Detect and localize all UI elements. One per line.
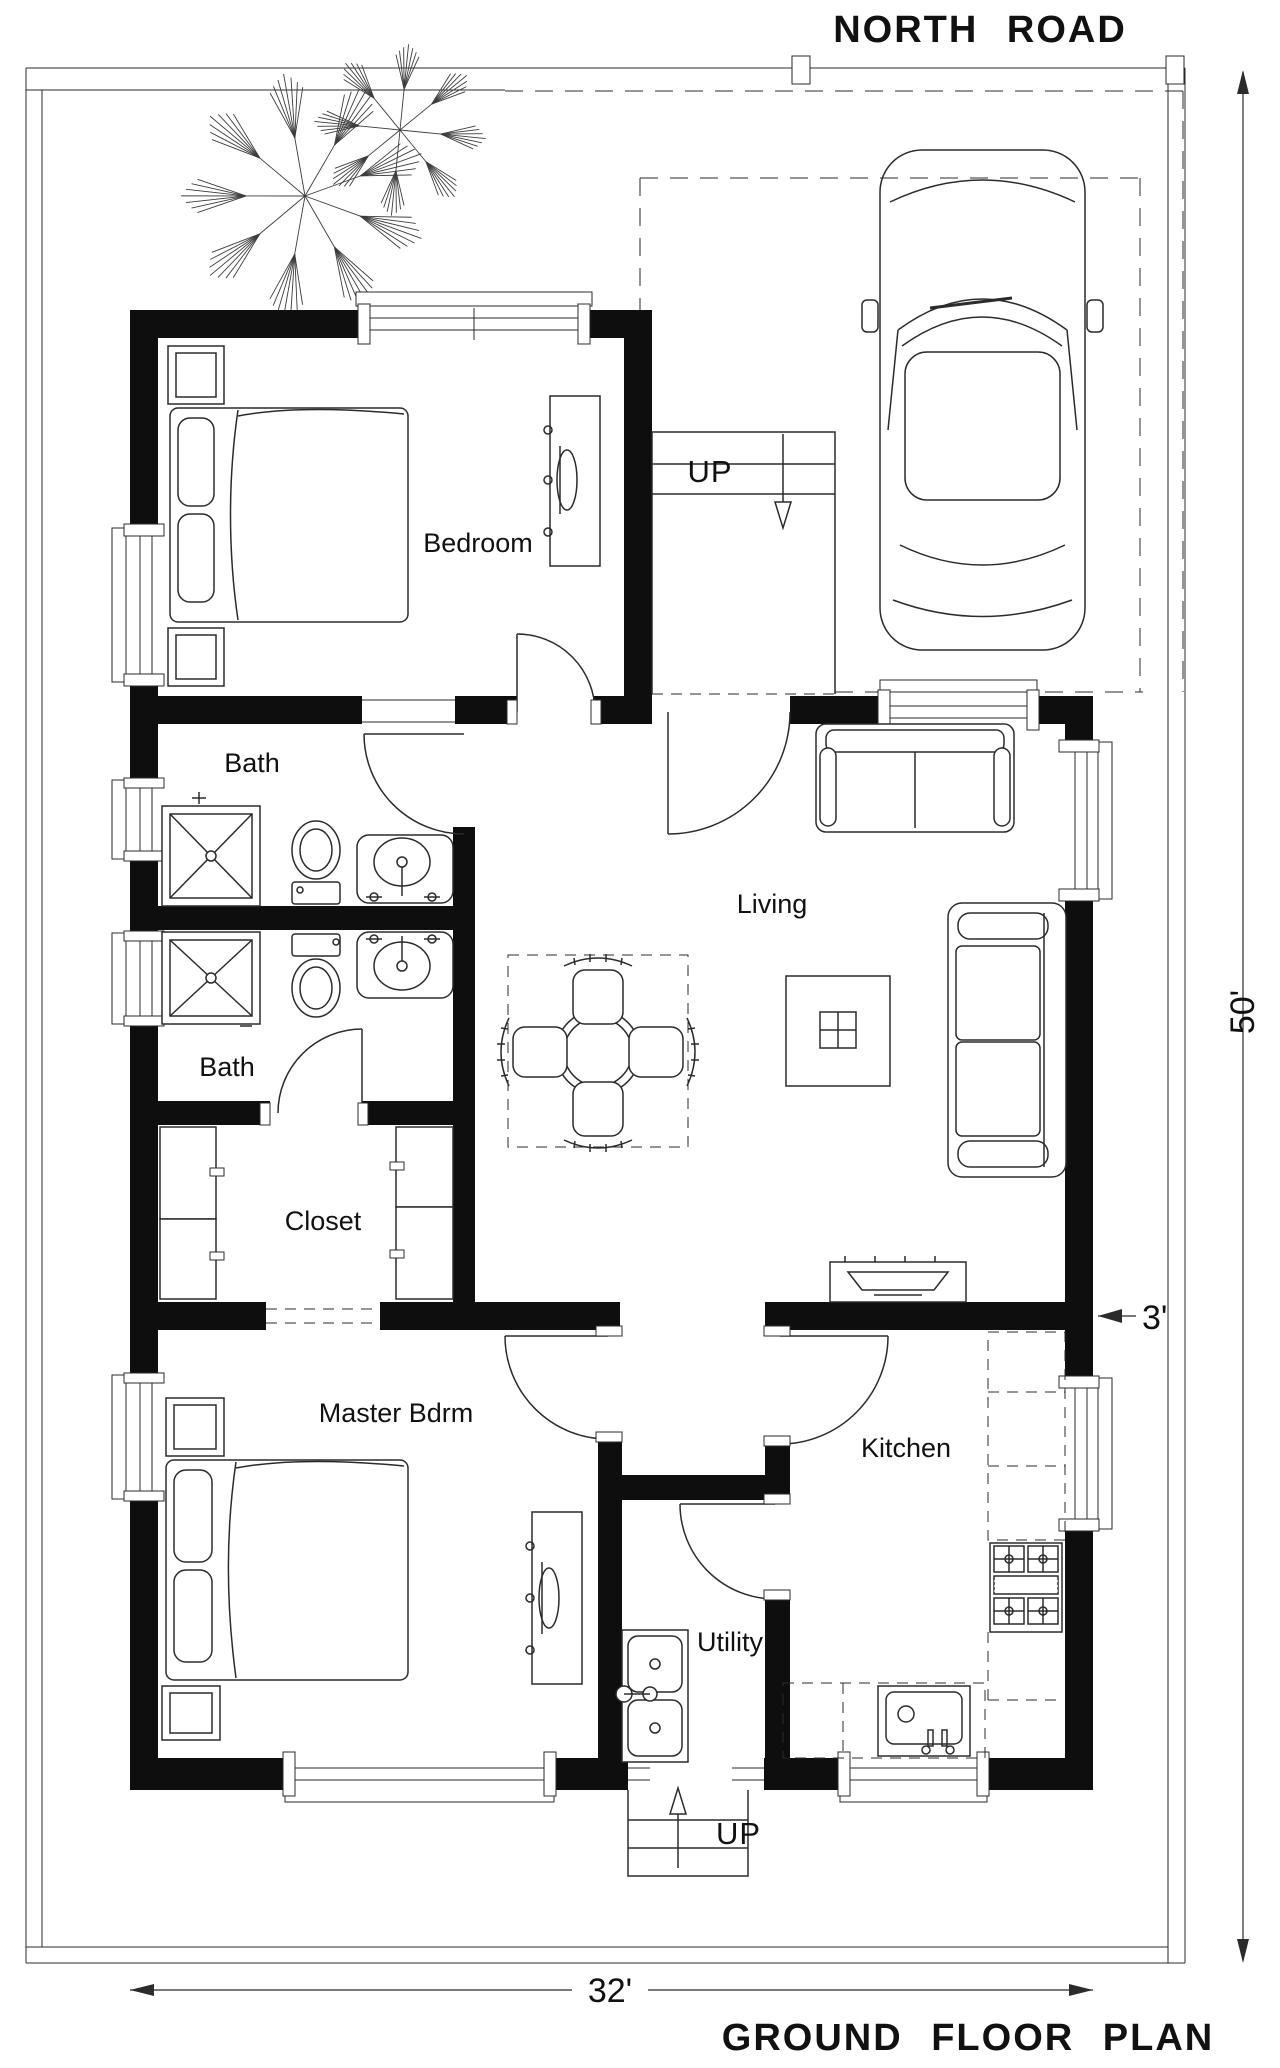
bed [170,408,408,622]
kitchen-sink [878,1686,970,1756]
door-arc-bath2 [278,1029,362,1113]
door-arc-kitchen [780,1336,888,1444]
bath2-fixtures [162,932,453,1026]
window [112,931,164,1026]
room-label-living: Living [737,889,808,919]
room-label-bedroom: Bedroom [423,528,533,558]
room-label-bath1: Bath [224,748,280,778]
room-label-utility: Utility [697,1627,763,1657]
window [838,1752,989,1802]
utility-sink [616,1630,688,1762]
bath1-fixtures [162,792,453,906]
window [112,778,164,861]
nightstand [168,346,224,404]
stove [990,1543,1062,1632]
window [283,1752,556,1802]
window [112,524,164,686]
car-mirror [862,300,878,332]
tree-icon [181,44,486,318]
door-arc-entry [668,712,790,834]
dimension-side-setback: 3' [1098,1299,1167,1337]
window [1059,1376,1112,1531]
dimension-house-width: 32' [130,1972,1093,2010]
sofa [948,903,1066,1177]
window [628,1758,650,1790]
room-label-master: Master Bdrm [319,1398,474,1428]
tv-console [830,1256,966,1302]
window [878,680,1039,730]
dining-set [497,954,699,1152]
window [732,1758,764,1790]
road-label: NORTH ROAD [833,9,1127,51]
gate-post [792,56,810,84]
vanity-sink [357,835,453,903]
nightstand [168,628,224,686]
room-label-kitchen: Kitchen [861,1433,951,1463]
gate-post [1166,56,1184,84]
door-arc-utility [680,1504,775,1599]
master-furniture [162,1398,582,1740]
room-label-closet: Closet [285,1206,362,1236]
dimension-3ft-label: 3' [1142,1299,1167,1337]
dimension-lot-depth: 50' [1224,70,1262,1963]
vanity-sink [357,932,453,998]
nightstand [166,1398,224,1456]
room-label-bath2: Bath [199,1052,255,1082]
stairs-up-label-bottom: UP [716,1816,761,1851]
door-arc-master [505,1336,608,1439]
kitchen-fixtures [783,1332,1065,1758]
driveway-dashed-outline [505,91,1183,692]
dimension-32ft-label: 32' [588,1972,632,2010]
car-mirror [1087,300,1103,332]
stair-direction-arrow [775,502,791,528]
nightstand [162,1686,220,1740]
stairs-up-label-top: UP [687,454,732,489]
dresser-tv [526,1512,582,1684]
toilet [292,821,340,904]
utility-fixtures [616,1630,688,1762]
car-icon [862,150,1103,650]
bedroom-furniture [168,346,600,686]
window [1059,740,1112,901]
stair-direction-arrow [670,1788,686,1814]
coffee-table [786,976,890,1086]
window [112,1373,164,1501]
loveseat [816,724,1014,832]
dresser-tv [544,396,600,566]
toilet [292,934,340,1017]
stairs-bottom: UP [628,1788,761,1876]
master-bed [166,1460,408,1680]
shower [162,792,260,906]
window [356,292,592,344]
shower [162,932,260,1026]
plan-title: GROUND FLOOR PLAN [722,2017,1214,2059]
living-furniture [497,724,1066,1302]
door-arc-bath1 [364,734,464,834]
floor-plan-canvas: UP UP [0,0,1280,2068]
door-arc-bedroom [517,634,595,712]
stairs-top: UP [652,432,835,694]
dimension-50ft-label: 50' [1224,990,1262,1034]
